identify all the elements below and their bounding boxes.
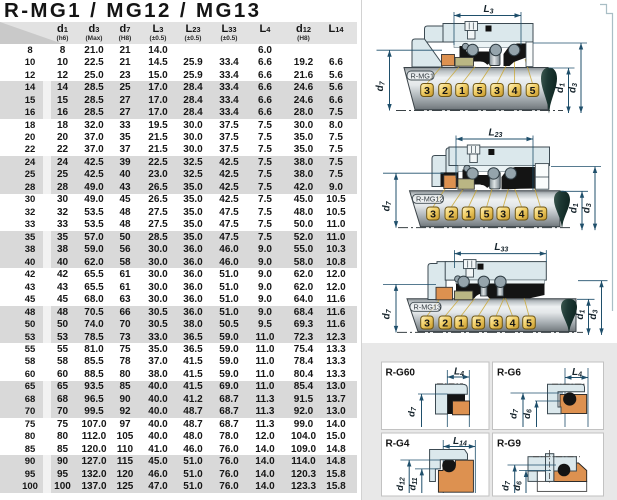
svg-text:5: 5 — [537, 208, 543, 220]
svg-text:d1: d1 — [555, 83, 567, 93]
svg-text:2: 2 — [448, 208, 454, 220]
svg-text:d7: d7 — [382, 200, 394, 211]
svg-text:5: 5 — [475, 317, 481, 329]
svg-text:R-G9: R-G9 — [497, 439, 521, 450]
svg-text:5: 5 — [484, 208, 490, 220]
svg-text:4: 4 — [512, 85, 518, 97]
svg-text:L33: L33 — [494, 242, 508, 254]
svg-text:R-G60: R-G60 — [386, 368, 416, 379]
svg-text:3: 3 — [500, 208, 506, 220]
svg-text:3: 3 — [424, 317, 430, 329]
svg-text:2: 2 — [442, 317, 448, 329]
svg-text:3: 3 — [430, 208, 436, 220]
svg-text:3: 3 — [494, 85, 500, 97]
svg-text:1: 1 — [459, 85, 465, 97]
svg-text:R-MG12: R-MG12 — [416, 195, 444, 204]
svg-text:d1: d1 — [575, 309, 587, 319]
svg-text:L23: L23 — [489, 128, 503, 140]
svg-text:d1: d1 — [569, 203, 581, 213]
svg-text:3: 3 — [493, 317, 499, 329]
svg-text:d3: d3 — [582, 203, 594, 213]
svg-text:3: 3 — [424, 85, 430, 97]
svg-text:R-G6: R-G6 — [497, 368, 521, 379]
svg-text:d3: d3 — [568, 83, 580, 93]
svg-text:R-G4: R-G4 — [386, 439, 410, 450]
svg-text:1: 1 — [458, 317, 464, 329]
svg-text:d7: d7 — [382, 308, 394, 319]
svg-text:L3: L3 — [483, 4, 493, 16]
svg-text:5: 5 — [526, 317, 532, 329]
svg-text:d7: d7 — [375, 80, 387, 91]
svg-text:1: 1 — [466, 208, 472, 220]
svg-text:5: 5 — [530, 85, 536, 97]
svg-text:d3: d3 — [588, 309, 600, 319]
svg-text:2: 2 — [442, 85, 448, 97]
svg-text:5: 5 — [477, 85, 483, 97]
svg-text:R-MG1: R-MG1 — [411, 71, 435, 80]
svg-text:R-MG13: R-MG13 — [414, 303, 442, 312]
svg-text:4: 4 — [510, 317, 516, 329]
svg-text:4: 4 — [519, 208, 525, 220]
